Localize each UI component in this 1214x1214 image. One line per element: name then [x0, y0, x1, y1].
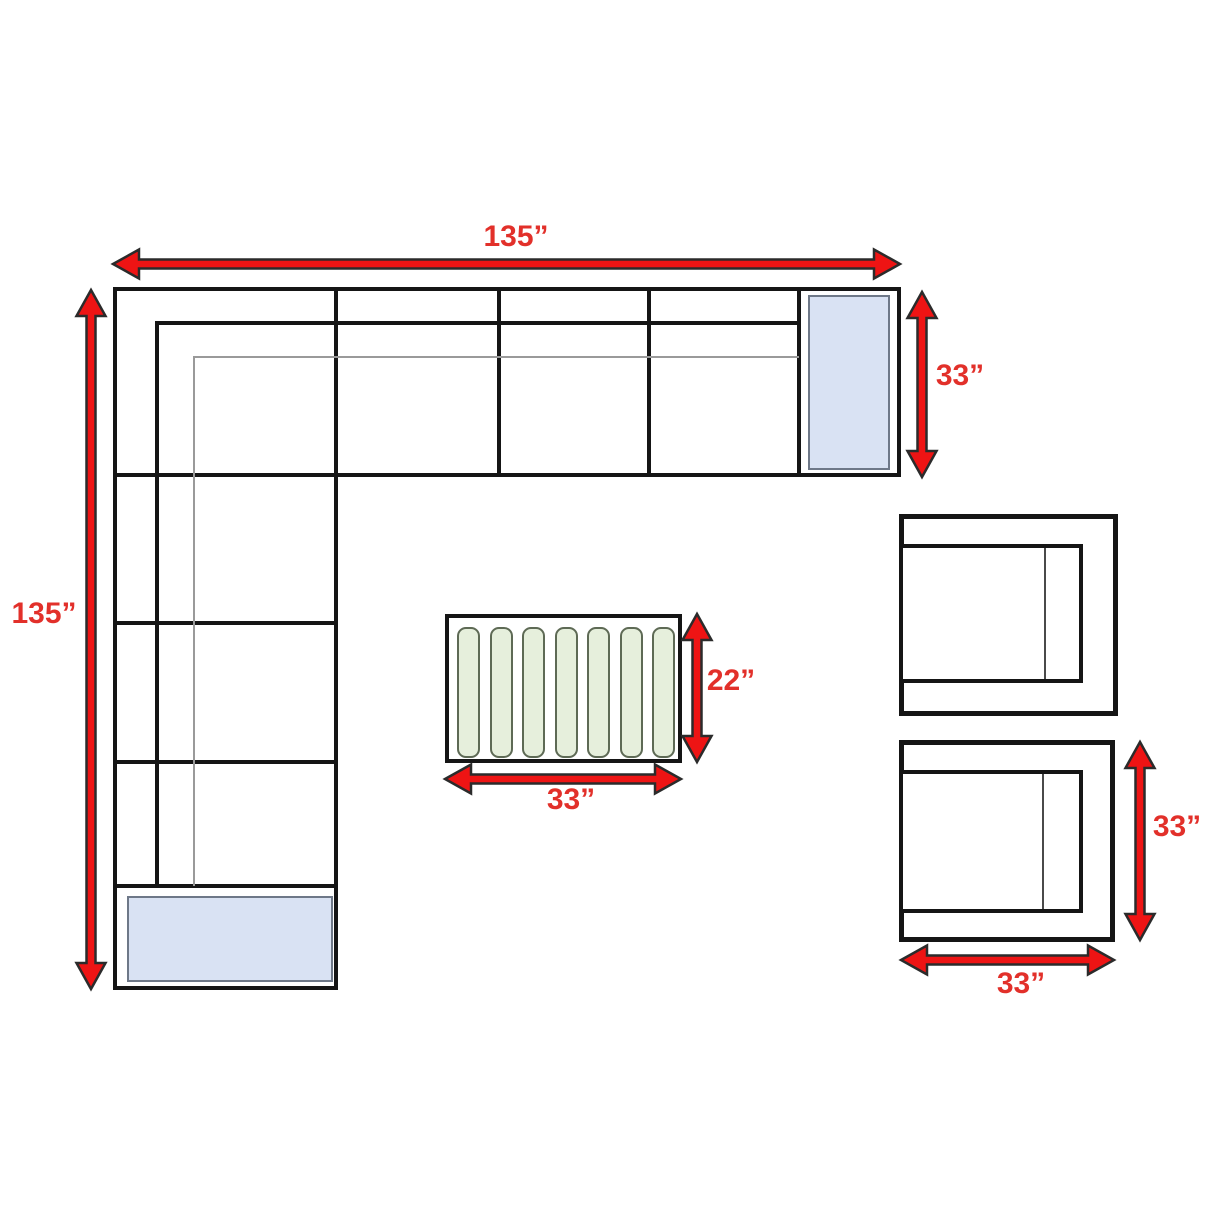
- sofa-cushion-line: [193, 356, 195, 886]
- coffee-table-depth-label: 22”: [707, 666, 755, 696]
- floor-plan-canvas: 135” 135” 33” 22” 33” 33” 33”: [0, 0, 1214, 1214]
- sofa-seat-divider: [497, 287, 501, 477]
- armchair-width-label: 33”: [997, 969, 1045, 999]
- double-arrow-shape: [1126, 742, 1155, 940]
- sofa-width-label: 135”: [483, 222, 548, 252]
- sofa-top-row: [113, 287, 901, 477]
- double-arrow-shape: [113, 250, 900, 279]
- armchair-bottom-seat: [899, 770, 1083, 913]
- sofa-seat-divider: [334, 287, 338, 477]
- coffee-table-slat: [620, 627, 643, 758]
- sofa-depth-arrow-icon: [73, 287, 109, 992]
- sofa-backrest-line: [155, 321, 799, 325]
- coffee-table-slat: [652, 627, 675, 758]
- sofa-backrest-line: [155, 321, 159, 886]
- sofa-seat-divider: [113, 884, 338, 888]
- double-arrow-shape: [77, 290, 106, 989]
- sofa-seat-divider: [113, 621, 338, 625]
- coffee-table-slat: [522, 627, 545, 758]
- coffee-table-width-label: 33”: [547, 785, 595, 815]
- sofa-seat-divider: [113, 760, 338, 764]
- coffee-table-slat: [587, 627, 610, 758]
- sofa-section-depth-arrow-icon: [904, 289, 940, 480]
- sofa-seat-divider: [647, 287, 651, 477]
- coffee-table-slat: [457, 627, 480, 758]
- sofa-cushion-line: [193, 356, 799, 358]
- sofa-end-table-right: [808, 295, 890, 470]
- double-arrow-shape: [908, 292, 937, 477]
- sofa-end-table-bottom: [127, 896, 333, 982]
- armchair-top-seat: [899, 544, 1083, 683]
- sofa-section-depth-label: 33”: [936, 361, 984, 391]
- coffee-table: [445, 614, 682, 763]
- sofa-seat-divider: [797, 287, 801, 477]
- coffee-table-slat: [490, 627, 513, 758]
- armchair-top-cushion-line: [1044, 548, 1046, 679]
- coffee-table-slat: [555, 627, 578, 758]
- armchair-depth-label: 33”: [1153, 812, 1201, 842]
- sofa-depth-label: 135”: [11, 599, 76, 629]
- armchair-bottom-cushion-line: [1042, 774, 1044, 909]
